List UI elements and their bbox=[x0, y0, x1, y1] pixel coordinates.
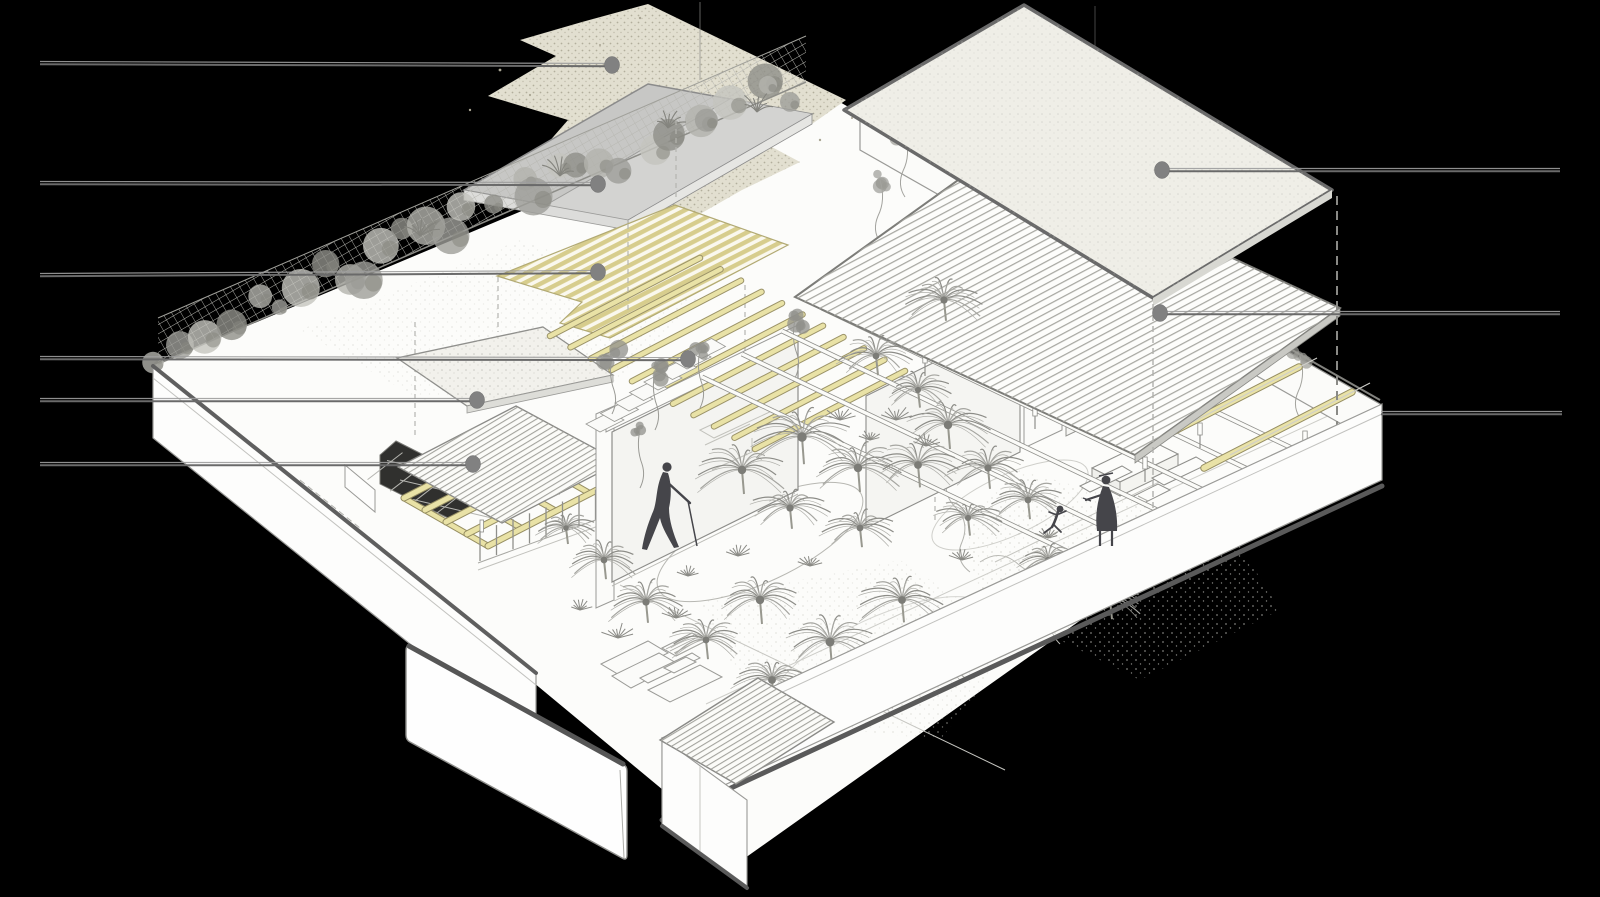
leader-dot bbox=[681, 351, 696, 368]
leader-dot bbox=[591, 264, 606, 281]
leader-dot bbox=[466, 456, 481, 473]
leader-dot bbox=[605, 57, 620, 74]
drawing-canvas bbox=[0, 0, 1600, 897]
leader-dot bbox=[470, 392, 485, 409]
architectural-axonometric-diagram bbox=[0, 0, 1600, 897]
leader-dot bbox=[1155, 162, 1170, 179]
leader-dot bbox=[1153, 305, 1168, 322]
leader-dot bbox=[591, 176, 606, 193]
